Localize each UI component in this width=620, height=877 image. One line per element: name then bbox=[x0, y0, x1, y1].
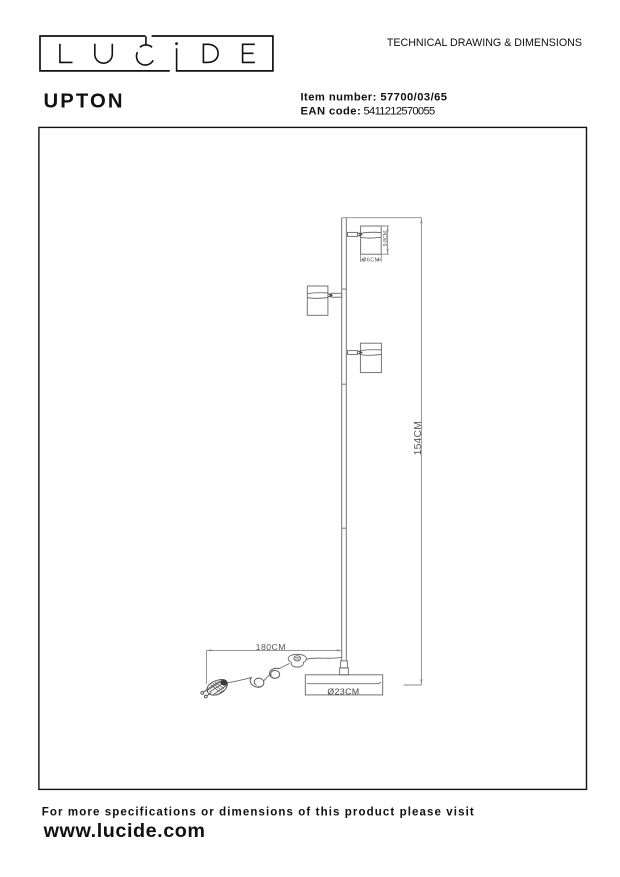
svg-text:180CM: 180CM bbox=[256, 642, 286, 652]
svg-text:154CM: 154CM bbox=[413, 421, 424, 456]
svg-text:For more specifications or dim: For more specifications or dimensions of… bbox=[42, 806, 475, 818]
svg-text:www.lucide.com: www.lucide.com bbox=[43, 820, 206, 842]
svg-text:9.8CM: 9.8CM bbox=[383, 231, 389, 246]
svg-text:EAN code: 5411212570055: EAN code: 5411212570055 bbox=[301, 105, 435, 117]
svg-text:TECHNICAL DRAWING & DIMENSIONS: TECHNICAL DRAWING & DIMENSIONS bbox=[387, 37, 582, 49]
svg-text:Ø6CM: Ø6CM bbox=[362, 258, 380, 264]
svg-text:UPTON: UPTON bbox=[44, 91, 125, 113]
svg-text:Item number: 57700/03/65: Item number: 57700/03/65 bbox=[301, 91, 448, 103]
svg-text:Ø23CM: Ø23CM bbox=[327, 686, 359, 696]
